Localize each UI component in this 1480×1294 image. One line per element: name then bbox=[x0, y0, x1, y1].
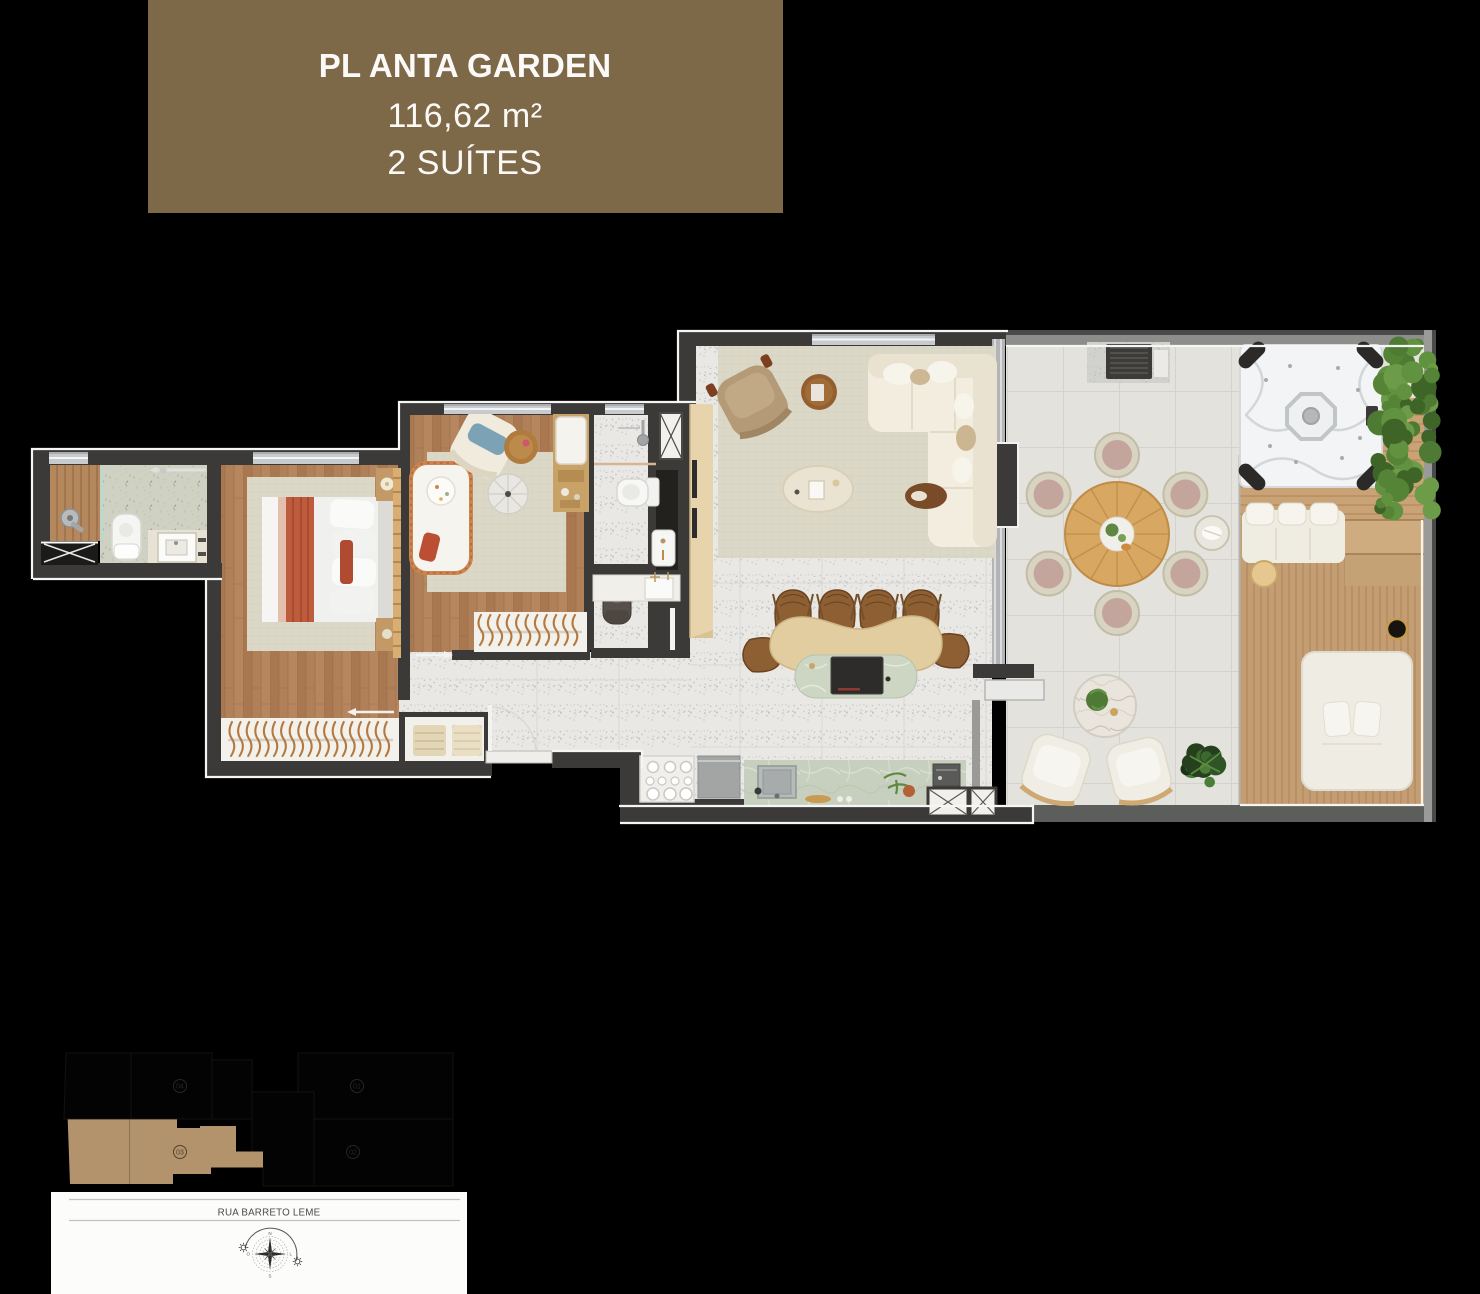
svg-text:RUA BARRETO LEME: RUA BARRETO LEME bbox=[218, 1208, 321, 1219]
svg-text:S: S bbox=[268, 1274, 271, 1279]
svg-text:N: N bbox=[268, 1231, 271, 1236]
svg-text:03: 03 bbox=[176, 1150, 184, 1157]
svg-text:116,62 m²: 116,62 m² bbox=[387, 97, 542, 135]
svg-text:O: O bbox=[247, 1252, 251, 1257]
svg-text:PL ANTA GARDEN: PL ANTA GARDEN bbox=[319, 47, 611, 84]
svg-text:2 SUÍTES: 2 SUÍTES bbox=[387, 144, 542, 182]
svg-text:04: 04 bbox=[176, 1084, 184, 1091]
svg-text:02: 02 bbox=[349, 1150, 357, 1157]
svg-text:01: 01 bbox=[353, 1084, 361, 1091]
